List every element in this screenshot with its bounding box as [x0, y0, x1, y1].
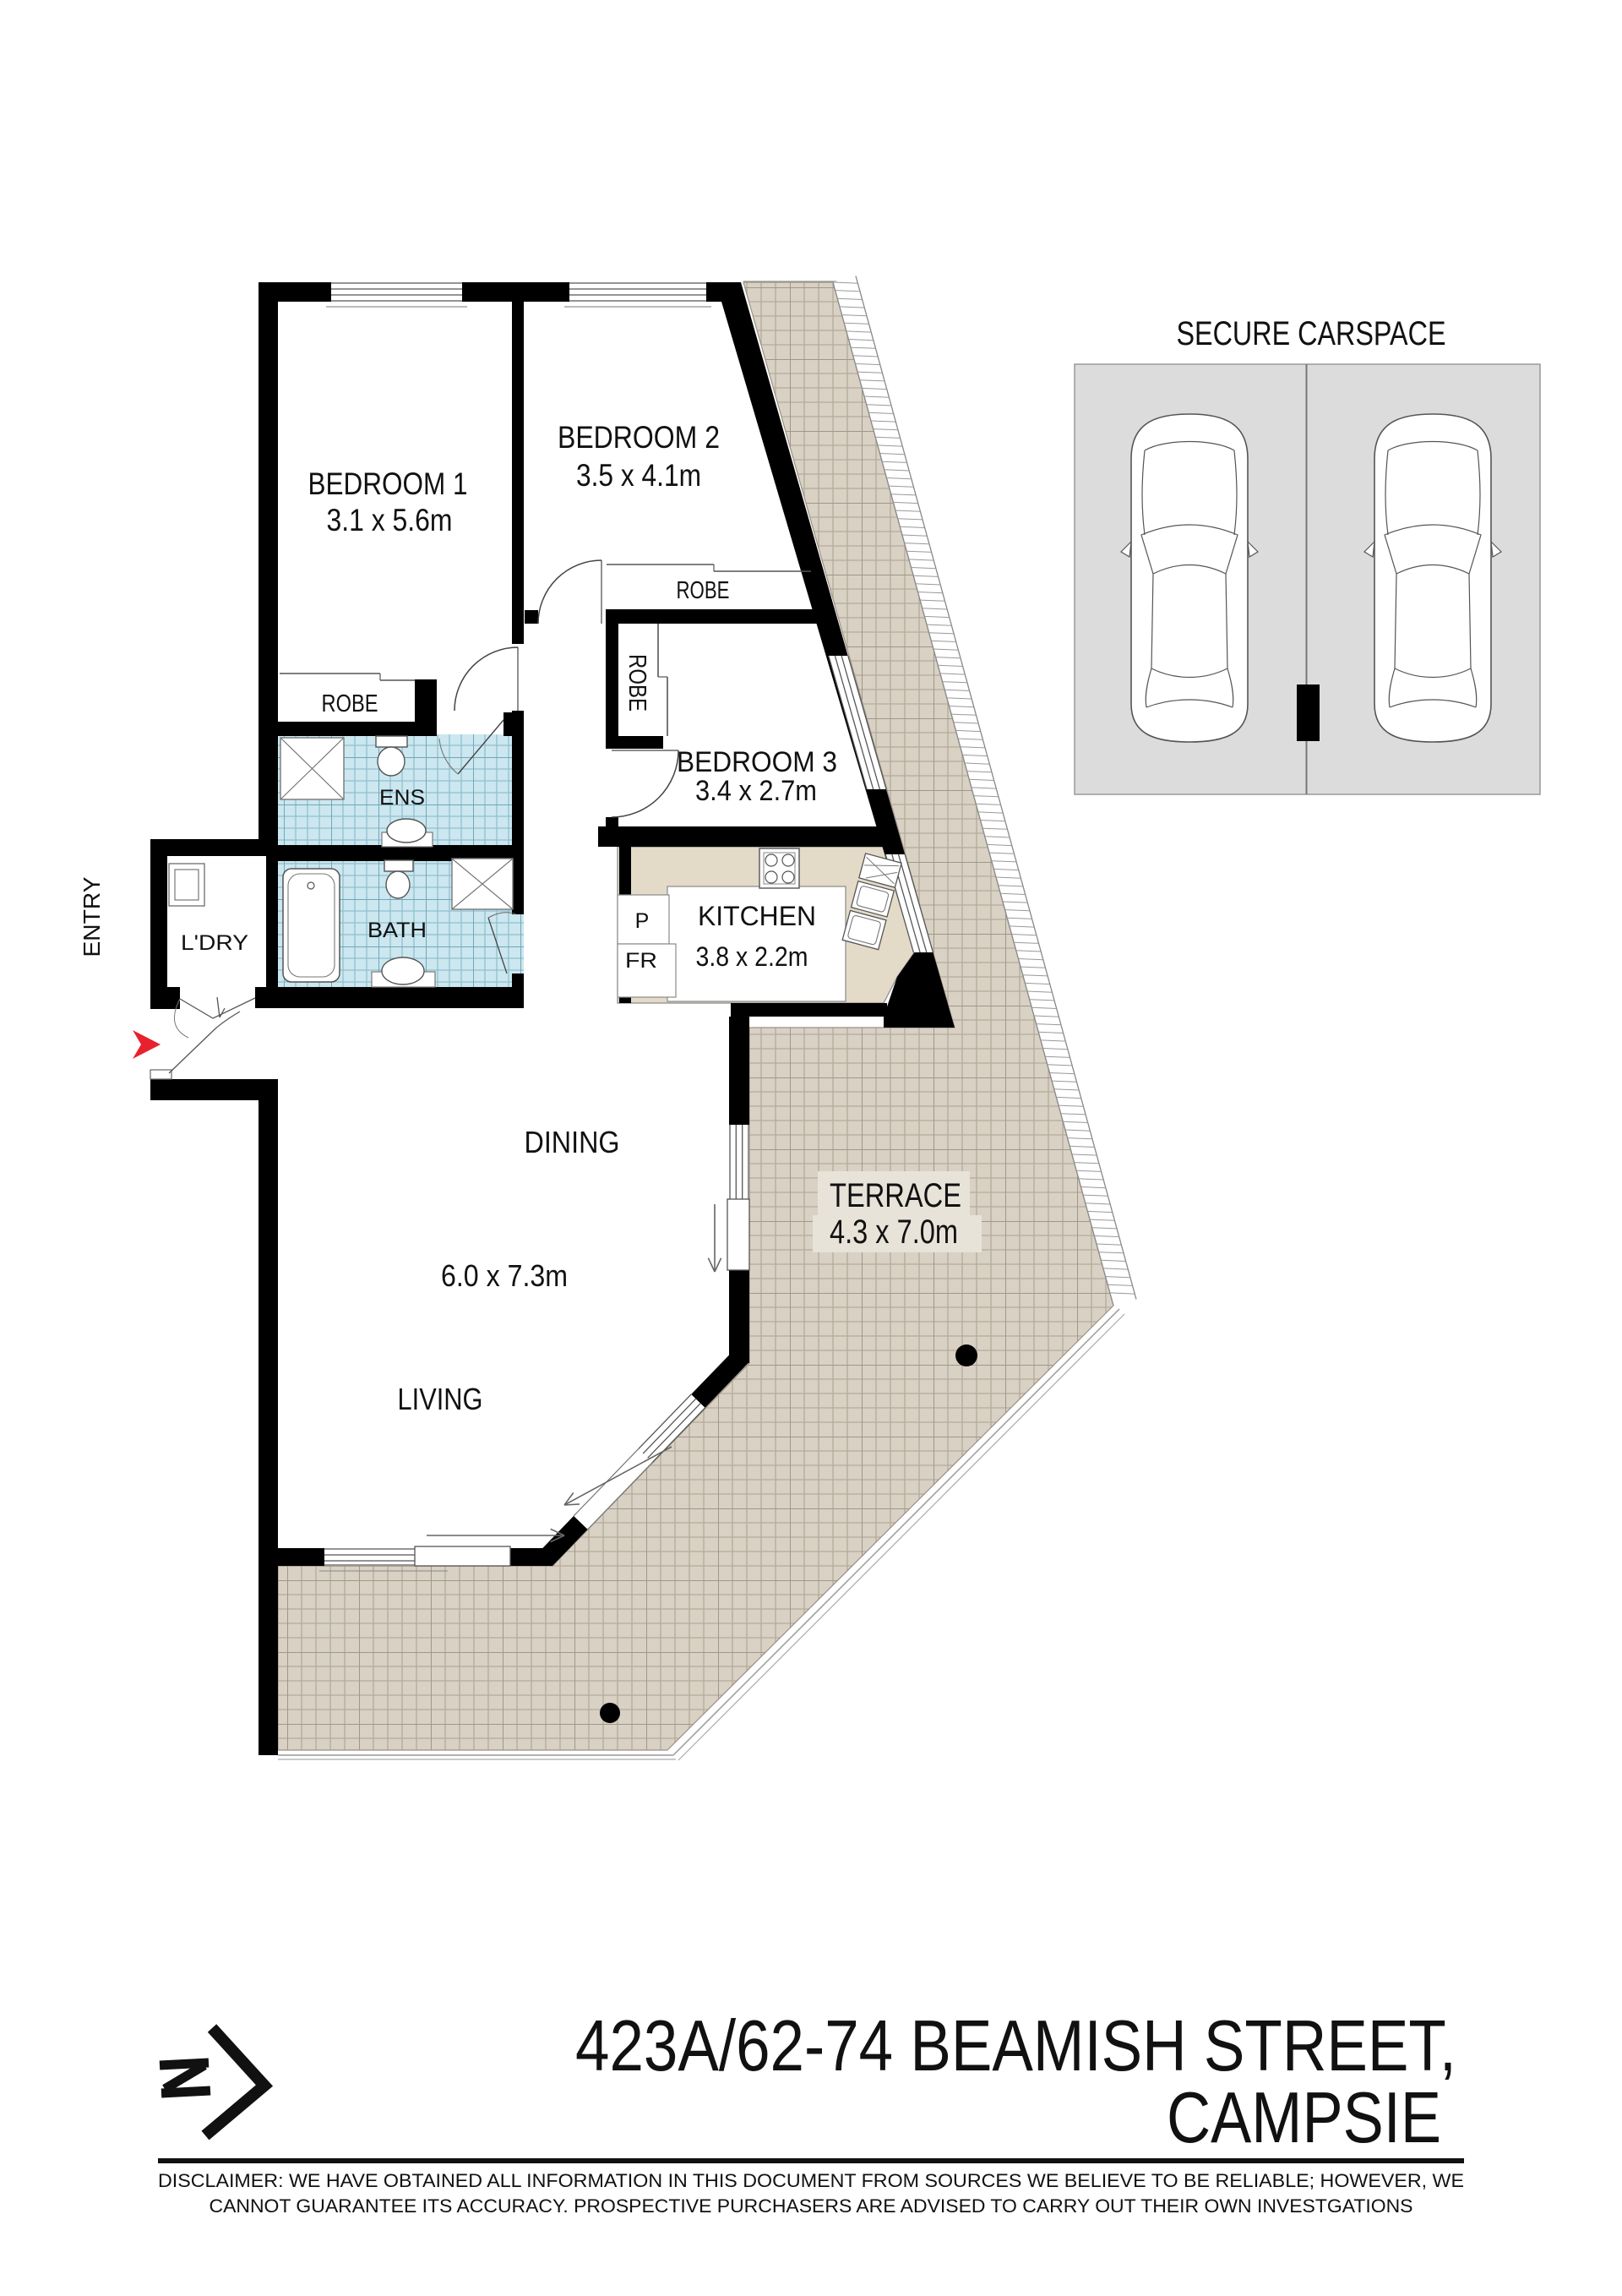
- svg-text:ENTRY: ENTRY: [79, 876, 105, 957]
- svg-text:ROBE: ROBE: [322, 690, 378, 717]
- svg-text:P: P: [635, 909, 650, 933]
- svg-text:CANNOT GUARANTEE ITS ACCURACY.: CANNOT GUARANTEE ITS ACCURACY. PROSPECTI…: [210, 2195, 1413, 2217]
- svg-text:BEDROOM 1: BEDROOM 1: [308, 466, 468, 501]
- svg-text:BEDROOM 3: BEDROOM 3: [677, 746, 837, 778]
- svg-text:4.3 x 7.0m: 4.3 x 7.0m: [830, 1213, 958, 1251]
- svg-text:DINING: DINING: [525, 1125, 620, 1159]
- svg-text:3.5 x 4.1m: 3.5 x 4.1m: [576, 458, 701, 493]
- svg-text:423A/62-74 BEAMISH STREET,: 423A/62-74 BEAMISH STREET,: [575, 2006, 1456, 2086]
- svg-text:ROBE: ROBE: [677, 577, 730, 604]
- svg-text:3.4 x 2.7m: 3.4 x 2.7m: [695, 775, 817, 807]
- svg-text:KITCHEN: KITCHEN: [698, 901, 816, 931]
- svg-text:3.8 x 2.2m: 3.8 x 2.2m: [696, 941, 808, 972]
- svg-text:TERRACE: TERRACE: [830, 1177, 961, 1214]
- svg-text:LIVING: LIVING: [398, 1382, 483, 1416]
- svg-text:6.0 x 7.3m: 6.0 x 7.3m: [441, 1258, 568, 1293]
- svg-text:ROBE: ROBE: [623, 654, 650, 712]
- svg-text:3.1 x 5.6m: 3.1 x 5.6m: [327, 503, 453, 537]
- svg-text:L'DRY: L'DRY: [181, 931, 248, 955]
- svg-text:BEDROOM 2: BEDROOM 2: [558, 420, 720, 455]
- svg-text:DISCLAIMER: WE HAVE OBTAINED A: DISCLAIMER: WE HAVE OBTAINED ALL INFORMA…: [158, 2170, 1464, 2191]
- svg-text:SECURE CARSPACE: SECURE CARSPACE: [1177, 315, 1446, 352]
- svg-text:CAMPSIE: CAMPSIE: [1167, 2078, 1441, 2158]
- svg-text:FR: FR: [625, 949, 657, 973]
- svg-text:BATH: BATH: [367, 919, 427, 942]
- svg-text:ENS: ENS: [379, 786, 425, 810]
